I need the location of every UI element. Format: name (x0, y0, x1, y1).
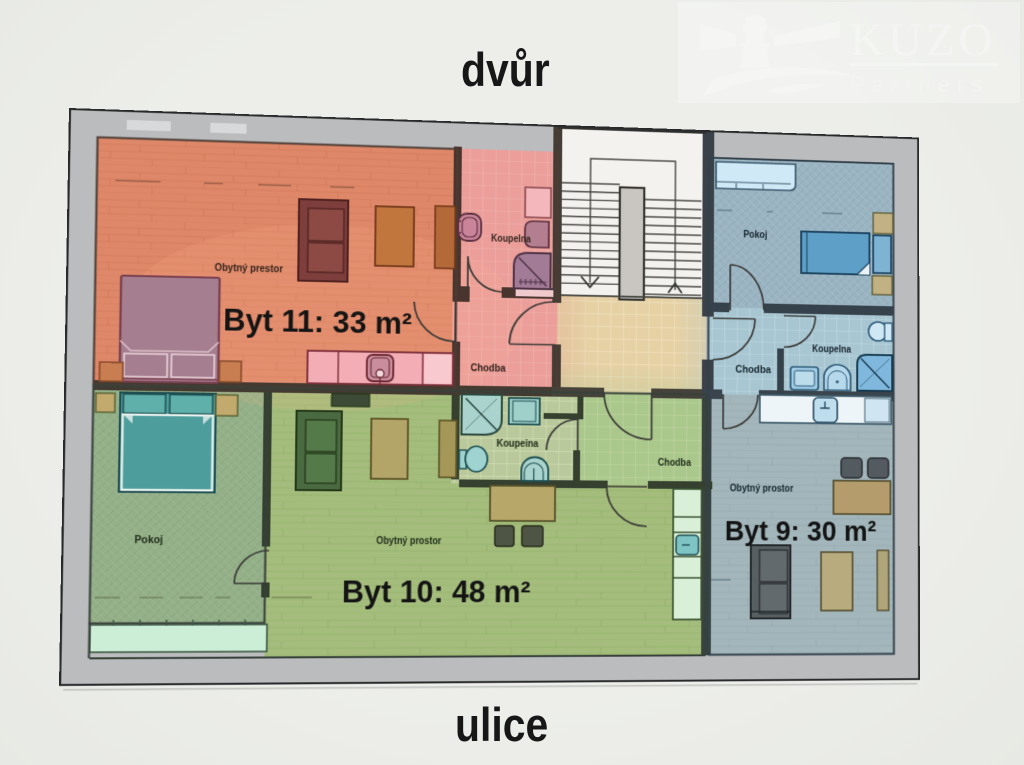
svg-text:Byt 10: 48 m²: Byt 10: 48 m² (342, 574, 531, 609)
svg-text:Obytný prostor: Obytný prostor (376, 535, 442, 547)
svg-text:Chodba: Chodba (735, 365, 771, 376)
svg-text:Chodba: Chodba (658, 457, 692, 469)
svg-text:Partners: Partners (850, 72, 989, 97)
svg-text:Obytný prostor: Obytný prostor (730, 483, 794, 495)
svg-text:Koupeina: Koupeina (497, 439, 539, 450)
svg-text:Byt 11: 33 m²: Byt 11: 33 m² (223, 302, 412, 340)
svg-text:Obytný prestor: Obytný prestor (214, 262, 283, 275)
svg-text:Pokoj: Pokoj (134, 534, 163, 546)
svg-text:Pokoj: Pokoj (743, 229, 767, 241)
svg-text:Koupelna: Koupelna (491, 233, 532, 245)
svg-text:Chodba: Chodba (471, 363, 507, 375)
svg-text:Koupelna: Koupelna (812, 344, 852, 356)
svg-text:Byt 9: 30 m²: Byt 9: 30 m² (725, 514, 877, 547)
svg-text:KUZO: KUZO (850, 14, 997, 66)
